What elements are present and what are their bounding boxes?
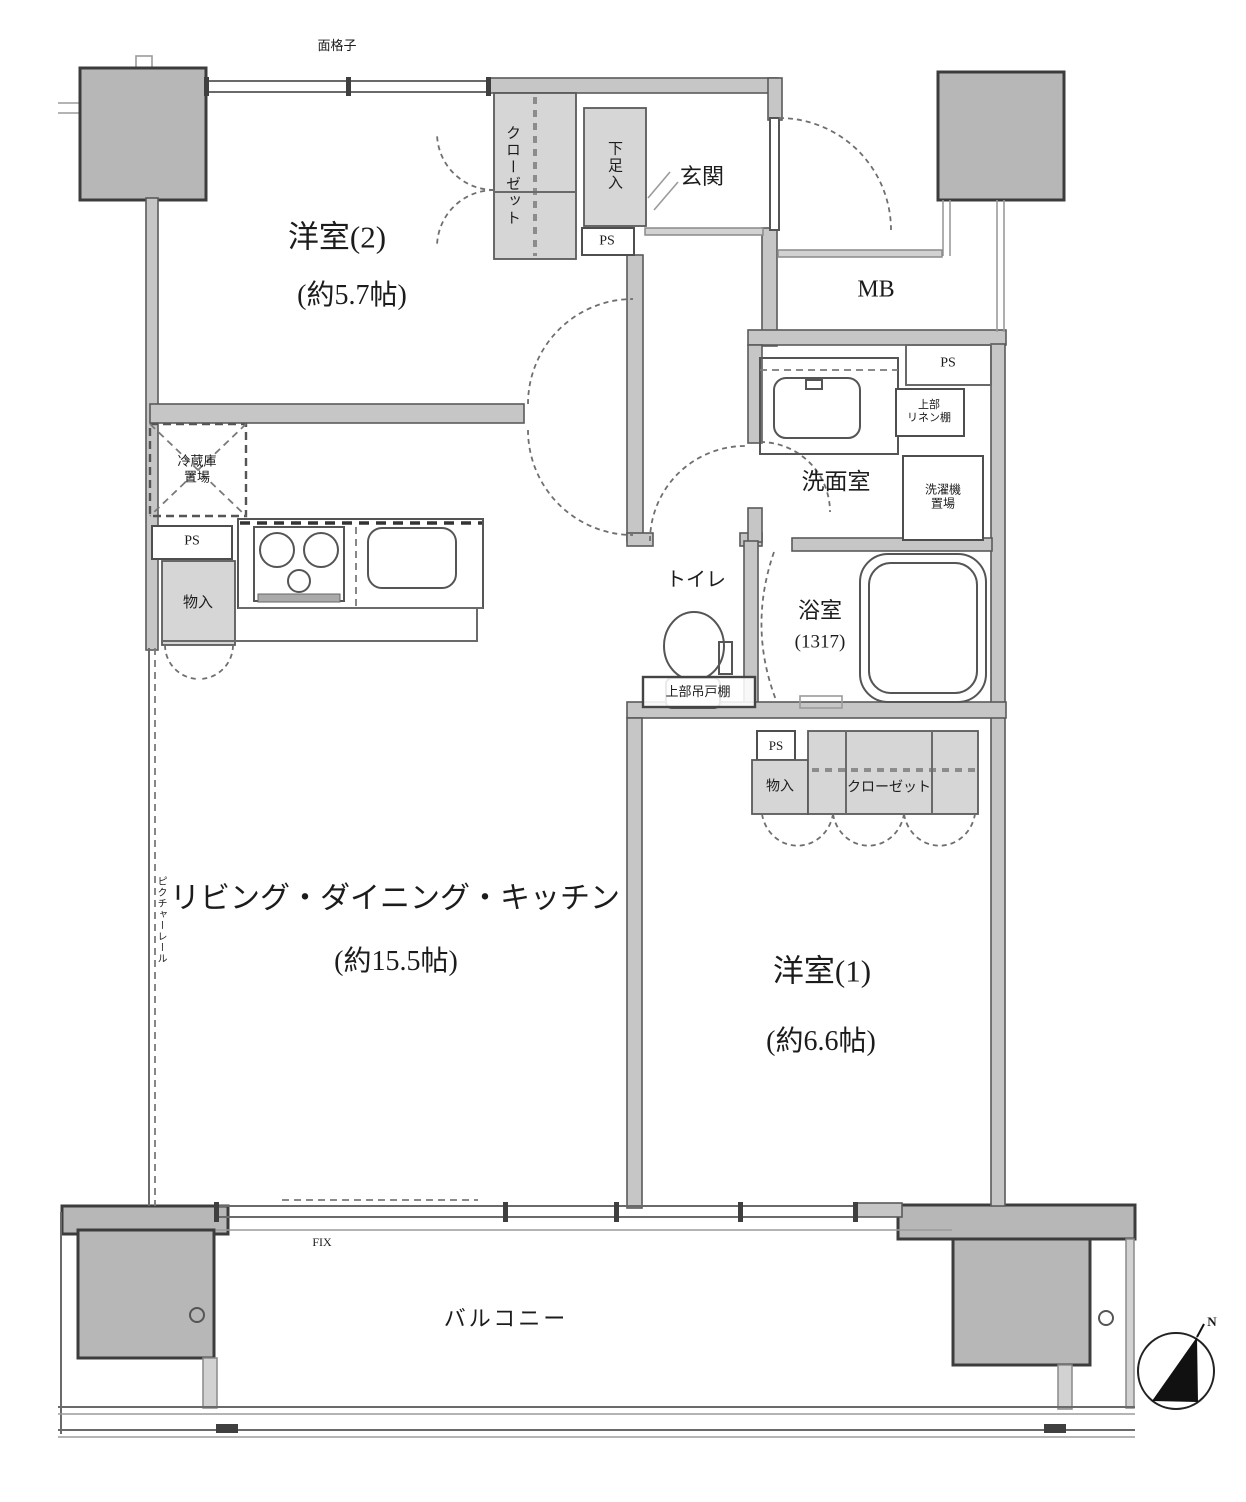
compass-north-label: N [1207, 1314, 1216, 1330]
pipe-space-label-right: PS [940, 356, 956, 373]
room-bath-size: (1317) [795, 632, 846, 655]
fridge-space-line2: 置場 [177, 469, 216, 485]
fridge-space-label: 冷蔵庫 置場 [177, 453, 216, 484]
linen-shelf-line1: 上部 [907, 399, 951, 412]
pipe-space-label-bottom: PS [769, 738, 783, 754]
compass-icon [1138, 1324, 1214, 1409]
pillar-top-left [58, 56, 206, 200]
floor-plan: 面格子 洋室(2) (約5.7帖) クローゼット 下足入 玄関 PS MB PS… [0, 0, 1246, 1502]
room-bath-name: 浴室 [798, 598, 842, 624]
room-washroom-name: 洗面室 [802, 468, 871, 496]
closet-bottom-label: クローゼット [847, 781, 931, 798]
room-western2-name: 洋室(2) [288, 218, 386, 255]
room-western1-name: 洋室(1) [773, 952, 871, 989]
storage-label-kitchen: 物入 [183, 594, 213, 612]
room-ldk-size: (約15.5帖) [334, 945, 458, 979]
pillar-top-right [938, 72, 1064, 200]
fix-window-label: FIX [312, 1235, 331, 1249]
closet-top-label: クローゼット [503, 125, 521, 227]
upper-cabinet-label: 上部吊戸棚 [665, 684, 730, 700]
shoe-cabinet-label: 下足入 [605, 141, 623, 192]
picture-rail-label: ピクチャーレール [154, 876, 166, 964]
linen-shelf-label: 上部 リネン棚 [907, 399, 951, 425]
lattice-label: 面格子 [317, 38, 356, 54]
washer-space-label: 洗濯機 置場 [925, 483, 961, 512]
washer-space-line2: 置場 [925, 497, 961, 511]
pillar-bottom-left [62, 1206, 228, 1408]
pipe-space-label-kitchen: PS [184, 534, 200, 551]
fridge-space-line1: 冷蔵庫 [177, 453, 216, 469]
meter-box-label: MB [857, 276, 894, 305]
storage-label-bottom: 物入 [766, 780, 794, 797]
window-top [204, 77, 491, 96]
room-entrance-name: 玄関 [680, 164, 724, 190]
pipe-space-label-top: PS [599, 234, 615, 251]
linen-shelf-line2: リネン棚 [907, 412, 951, 425]
window-bottom [214, 1200, 952, 1230]
floor-plan-drawing [0, 0, 1246, 1502]
washroom-vanity [760, 358, 898, 454]
washer-space-line1: 洗濯機 [925, 483, 961, 497]
room-toilet-name: トイレ [666, 568, 726, 592]
room-ldk-name: リビング・ダイニング・キッチン [170, 881, 620, 917]
room-western2-size: (約5.7帖) [297, 279, 407, 313]
room-balcony-name: バルコニー [444, 1306, 569, 1332]
room-western1-size: (約6.6帖) [766, 1025, 876, 1059]
pillar-bottom-right [898, 1205, 1135, 1409]
bathtub [761, 552, 986, 708]
